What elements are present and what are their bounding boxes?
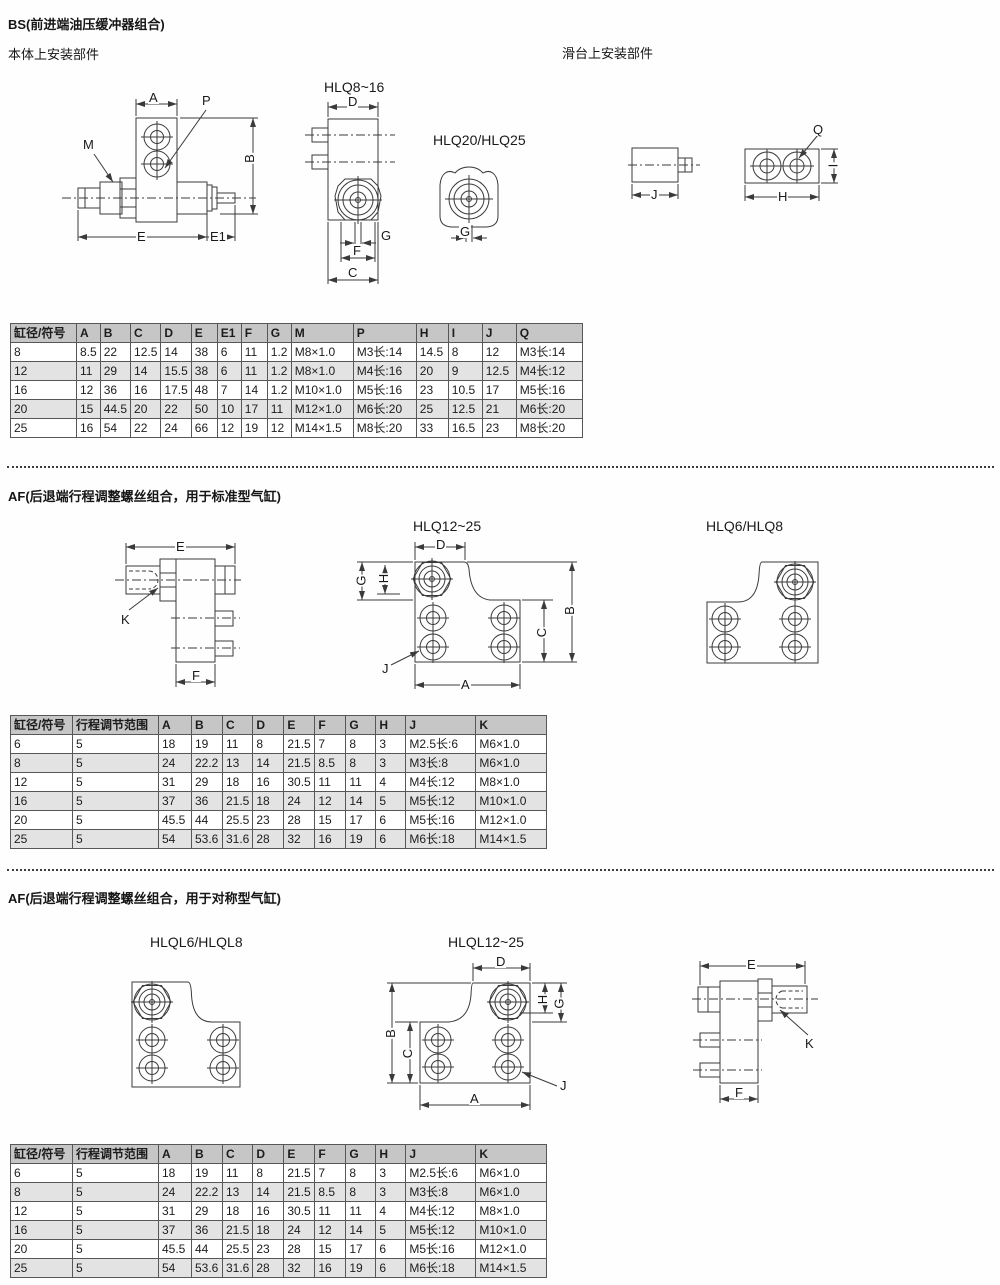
dim-label-d: D xyxy=(435,538,446,551)
figure-hlq12-25: D G H B C A J xyxy=(355,538,585,693)
table-cell: 21.5 xyxy=(223,792,253,811)
table-cell: 14 xyxy=(253,1183,284,1202)
dim-label-b: B xyxy=(563,605,576,616)
table-cell: 22 xyxy=(131,419,161,438)
table-cell: 37 xyxy=(159,1221,192,1240)
table-cell: 23 xyxy=(416,381,448,400)
screw-icon xyxy=(422,1051,454,1083)
table-cell: 12.5 xyxy=(482,362,516,381)
dim-label-c: C xyxy=(535,627,548,638)
table-cell: M14×1.5 xyxy=(476,830,547,849)
table-cell: M14×1.5 xyxy=(476,1259,547,1278)
table-cell: 18 xyxy=(253,1221,284,1240)
table-cell: 18 xyxy=(159,735,192,754)
table-cell: 12 xyxy=(11,362,77,381)
table-cell: 16 xyxy=(77,419,101,438)
dim-label-b: B xyxy=(384,1028,397,1039)
figure-title-hlql12-25: HLQL12~25 xyxy=(448,934,524,950)
table-cell: 12 xyxy=(315,1221,346,1240)
table-row: 65181911821.5783M2.5长:6M6×1.0 xyxy=(11,1164,547,1183)
screw-icon xyxy=(417,602,449,634)
table-cell: 6 xyxy=(11,1164,73,1183)
table-cell: M8长:20 xyxy=(353,419,416,438)
caption-body-mount: 本体上安装部件 xyxy=(8,44,99,63)
screw-icon xyxy=(207,1052,239,1084)
table-cell: 11 xyxy=(77,362,101,381)
figure-hlql6-hlql8 xyxy=(125,975,250,1090)
table-cell: 15.5 xyxy=(161,362,191,381)
dim-label-g: G xyxy=(355,574,368,586)
table-cell: 1.2 xyxy=(267,362,291,381)
column-header: 缸径/符号 xyxy=(11,1145,73,1164)
table-cell: M10×1.0 xyxy=(291,381,353,400)
table-cell: 54 xyxy=(159,1259,192,1278)
table-cell: 22.2 xyxy=(192,754,223,773)
table-cell: 15 xyxy=(77,400,101,419)
table-cell: 25 xyxy=(11,830,73,849)
table-cell: 24 xyxy=(284,792,315,811)
column-header: C xyxy=(131,324,161,343)
table-cell: 38 xyxy=(191,362,217,381)
table-cell: 19 xyxy=(241,419,267,438)
dim-label-g: G xyxy=(380,229,392,242)
table-cell: 8.5 xyxy=(315,754,346,773)
table-cell: 17 xyxy=(346,1240,376,1259)
screw-icon xyxy=(709,603,741,635)
dim-label-h: H xyxy=(536,994,549,1005)
column-header: E xyxy=(284,716,315,735)
table-cell: 15 xyxy=(315,1240,346,1259)
figure-hlq8-16: D G F C xyxy=(305,95,417,290)
column-header: P xyxy=(353,324,416,343)
dim-label-e: E xyxy=(746,958,757,971)
table-cell: 17 xyxy=(241,400,267,419)
table-cell: 16 xyxy=(253,773,284,792)
catalog-page: BS(前进端油压缓冲器组合) 本体上安装部件 滑台上安装部件 xyxy=(0,0,1000,1285)
table-cell: 8 xyxy=(346,1183,376,1202)
table-cell: 5 xyxy=(73,1221,159,1240)
table-cell: 20 xyxy=(11,811,73,830)
table-cell: 18 xyxy=(253,792,284,811)
table-cell: 7 xyxy=(315,1164,346,1183)
figure-title-hlq20-25: HLQ20/HLQ25 xyxy=(433,132,526,148)
figure-hlq20-25: G xyxy=(435,163,505,248)
table-cell: 28 xyxy=(253,1259,284,1278)
column-header: F xyxy=(315,1145,346,1164)
table-cell: 5 xyxy=(376,1221,406,1240)
table-cell: 10 xyxy=(217,400,241,419)
dim-label-a: A xyxy=(469,1092,480,1105)
table-cell: 12.5 xyxy=(448,400,482,419)
figure-af-std-side-view: E K F xyxy=(113,537,243,689)
table-cell: M3长:14 xyxy=(353,343,416,362)
table-cell: 4 xyxy=(376,1202,406,1221)
column-header: A xyxy=(77,324,101,343)
column-header: F xyxy=(241,324,267,343)
table-cell: 12 xyxy=(482,343,516,362)
table-cell: 24 xyxy=(159,754,192,773)
table-cell: 21.5 xyxy=(284,735,315,754)
table-af-symmetric: 缸径/符号行程调节范围ABCDEFGHJK65181911821.5783M2.… xyxy=(10,1144,547,1278)
table-cell: 18 xyxy=(159,1164,192,1183)
dotted-separator xyxy=(7,869,994,871)
column-header: A xyxy=(159,1145,192,1164)
table-cell: 54 xyxy=(159,830,192,849)
table-cell: 22.2 xyxy=(192,1183,223,1202)
table-cell: 66 xyxy=(191,419,217,438)
column-header: B xyxy=(100,324,130,343)
dim-label-f: F xyxy=(734,1086,744,1099)
column-header: Q xyxy=(516,324,582,343)
table-cell: 6 xyxy=(217,343,241,362)
dim-label-c: C xyxy=(401,1048,414,1059)
column-header: M xyxy=(291,324,353,343)
table-cell: M6×1.0 xyxy=(476,754,547,773)
table-cell: M8×1.0 xyxy=(476,773,547,792)
table-cell: M6×1.0 xyxy=(476,735,547,754)
figure-title-hlq6-hlq8: HLQ6/HLQ8 xyxy=(706,518,783,534)
table-cell: 29 xyxy=(192,773,223,792)
column-header: H xyxy=(376,1145,406,1164)
table-cell: 22 xyxy=(161,400,191,419)
table-cell: M5长:16 xyxy=(353,381,416,400)
table-cell: 23 xyxy=(482,419,516,438)
column-header: H xyxy=(416,324,448,343)
dim-label-e1: E1 xyxy=(209,230,227,243)
column-header: E xyxy=(284,1145,315,1164)
table-cell: 28 xyxy=(284,811,315,830)
table-cell: M14×1.5 xyxy=(291,419,353,438)
figure-title-hlql6-hlql8: HLQL6/HLQL8 xyxy=(150,934,243,950)
table-cell: M4长:12 xyxy=(406,1202,476,1221)
table-cell: 30.5 xyxy=(284,1202,315,1221)
column-header: C xyxy=(223,716,253,735)
table-cell: M4长:12 xyxy=(516,362,582,381)
screw-icon xyxy=(488,631,520,663)
column-header: 行程调节范围 xyxy=(73,1145,159,1164)
table-cell: 20 xyxy=(131,400,161,419)
figure-slider-block: J xyxy=(628,143,703,205)
table-cell: M2.5长:6 xyxy=(406,1164,476,1183)
figure-title-hlq12-25: HLQ12~25 xyxy=(413,518,481,534)
table-cell: 11 xyxy=(241,362,267,381)
screw-icon xyxy=(136,1052,168,1084)
screw-icon xyxy=(779,603,811,635)
table-row: 201544.5202250101711M12×1.0M6长:202512.52… xyxy=(11,400,583,419)
table-cell: 8 xyxy=(346,754,376,773)
table-cell: 12 xyxy=(11,1202,73,1221)
column-header: J xyxy=(482,324,516,343)
screw-icon xyxy=(709,631,741,663)
figure-title-hlq8-16: HLQ8~16 xyxy=(324,79,384,95)
table-cell: M4长:12 xyxy=(406,773,476,792)
table-cell: 3 xyxy=(376,735,406,754)
table-cell: 15 xyxy=(315,811,346,830)
hlq8-16-drawing xyxy=(305,95,417,290)
table-cell: 23 xyxy=(253,811,284,830)
table-cell: 5 xyxy=(73,754,159,773)
table-cell: 50 xyxy=(191,400,217,419)
table-cell: M5长:16 xyxy=(406,1240,476,1259)
column-header: E xyxy=(191,324,217,343)
screw-icon xyxy=(207,1024,239,1056)
table-cell: M6×1.0 xyxy=(476,1164,547,1183)
table-cell: 4 xyxy=(376,773,406,792)
table-cell: 21 xyxy=(482,400,516,419)
table-cell: 8 xyxy=(346,735,376,754)
column-header: E1 xyxy=(217,324,241,343)
table-cell: M6长:20 xyxy=(516,400,582,419)
table-cell: 19 xyxy=(192,1164,223,1183)
table-cell: M8×1.0 xyxy=(291,343,353,362)
table-cell: 25 xyxy=(11,419,77,438)
table-cell: M10×1.0 xyxy=(476,1221,547,1240)
table-cell: 12 xyxy=(315,792,346,811)
column-header: B xyxy=(192,1145,223,1164)
dim-label-k: K xyxy=(120,613,131,626)
screw-icon xyxy=(488,602,520,634)
table-cell: 19 xyxy=(346,1259,376,1278)
table-cell: M6×1.0 xyxy=(476,1183,547,1202)
table-cell: M5长:16 xyxy=(406,811,476,830)
table-cell: 53.6 xyxy=(192,1259,223,1278)
table-cell: M6长:20 xyxy=(353,400,416,419)
column-header: K xyxy=(476,1145,547,1164)
table-cell: 8 xyxy=(11,343,77,362)
dim-label-p: P xyxy=(201,94,212,107)
table-cell: M3长:8 xyxy=(406,754,476,773)
table-cell: 20 xyxy=(11,1240,73,1259)
dim-label-j: J xyxy=(559,1079,568,1092)
table-cell: 45.5 xyxy=(159,1240,192,1259)
table-row: 2555453.631.6283216196M6长:18M14×1.5 xyxy=(11,1259,547,1278)
table-cell: 1.2 xyxy=(267,343,291,362)
dim-label-m: M xyxy=(82,138,95,151)
table-cell: 23 xyxy=(253,1240,284,1259)
section-title-bs: BS(前进端油压缓冲器组合) xyxy=(8,14,165,33)
table-cell: 12 xyxy=(77,381,101,400)
adjuster-screw-icon xyxy=(487,981,529,1023)
table-row: 852422.2131421.58.583M3长:8M6×1.0 xyxy=(11,754,547,773)
table-cell: 36 xyxy=(192,1221,223,1240)
dim-label-h: H xyxy=(377,573,390,584)
table-cell: 17 xyxy=(482,381,516,400)
table-cell: 11 xyxy=(315,773,346,792)
table-cell: 5 xyxy=(376,792,406,811)
dim-label-d: D xyxy=(495,955,506,968)
table-cell: 16 xyxy=(11,381,77,400)
table-cell: 11 xyxy=(223,735,253,754)
table-cell: 8 xyxy=(11,754,73,773)
table-cell: 10.5 xyxy=(448,381,482,400)
table-cell: 16 xyxy=(11,1221,73,1240)
table-cell: 21.5 xyxy=(223,1221,253,1240)
table-row: 165373621.5182412145M5长:12M10×1.0 xyxy=(11,792,547,811)
table-bs: 缸径/符号ABCDEE1FGMPHIJQ88.52212.514386111.2… xyxy=(10,323,583,438)
column-header: F xyxy=(315,716,346,735)
table-cell: 38 xyxy=(191,343,217,362)
dim-label-j: J xyxy=(381,662,390,675)
table-cell: 5 xyxy=(73,735,159,754)
column-header: D xyxy=(253,716,284,735)
hlql12-25-drawing xyxy=(385,955,600,1115)
table-cell: 29 xyxy=(100,362,130,381)
table-row: 2555453.631.6283216196M6长:18M14×1.5 xyxy=(11,830,547,849)
buffer-side-drawing xyxy=(60,90,270,255)
dim-label-a: A xyxy=(148,91,159,104)
column-header: B xyxy=(192,716,223,735)
table-cell: 16 xyxy=(131,381,161,400)
table-cell: 6 xyxy=(376,1259,406,1278)
table-cell: 14.5 xyxy=(416,343,448,362)
screw-icon xyxy=(492,1051,524,1083)
column-header: 缸径/符号 xyxy=(11,716,73,735)
column-header: D xyxy=(253,1145,284,1164)
dim-label-d: D xyxy=(347,95,358,108)
table-cell: M6长:18 xyxy=(406,830,476,849)
table-cell: 54 xyxy=(100,419,130,438)
table-cell: 14 xyxy=(253,754,284,773)
table-cell: 5 xyxy=(73,1240,159,1259)
dim-label-f: F xyxy=(352,244,362,257)
table-cell: 14 xyxy=(346,792,376,811)
dim-label-g: G xyxy=(553,997,566,1009)
screw-icon xyxy=(779,631,811,663)
table-cell: 3 xyxy=(376,1164,406,1183)
table-cell: 28 xyxy=(284,1240,315,1259)
column-header: K xyxy=(476,716,547,735)
column-header: I xyxy=(448,324,482,343)
table-cell: 17 xyxy=(346,811,376,830)
screw-icon xyxy=(136,1024,168,1056)
column-header: A xyxy=(159,716,192,735)
hlql6-hlql8-drawing xyxy=(125,975,250,1090)
table-cell: 17.5 xyxy=(161,381,191,400)
adjuster-screw-icon xyxy=(774,561,816,603)
figure-hlq6-hlq8 xyxy=(700,555,825,670)
table-cell: M3长:8 xyxy=(406,1183,476,1202)
table-cell: 5 xyxy=(73,1202,159,1221)
slider-block-drawing xyxy=(628,143,703,205)
column-header: J xyxy=(406,716,476,735)
table-cell: 11 xyxy=(346,773,376,792)
table-row: 165373621.5182412145M5长:12M10×1.0 xyxy=(11,1221,547,1240)
table-cell: 44 xyxy=(192,1240,223,1259)
table-cell: 31 xyxy=(159,773,192,792)
table-cell: 8.5 xyxy=(77,343,101,362)
table-cell: 3 xyxy=(376,1183,406,1202)
table-row: 1612361617.5487141.2M10×1.0M5长:162310.51… xyxy=(11,381,583,400)
table-cell: 13 xyxy=(223,1183,253,1202)
dim-label-f: F xyxy=(191,669,201,682)
column-header: G xyxy=(346,1145,376,1164)
table-cell: 5 xyxy=(73,1259,159,1278)
table-cell: 6 xyxy=(217,362,241,381)
table-cell: 44 xyxy=(192,811,223,830)
dim-label-g: G xyxy=(459,225,471,238)
table-cell: 28 xyxy=(253,830,284,849)
column-header: 行程调节范围 xyxy=(73,716,159,735)
table-cell: 16.5 xyxy=(448,419,482,438)
table-cell: M6长:18 xyxy=(406,1259,476,1278)
column-header: C xyxy=(223,1145,253,1164)
table-cell: 16 xyxy=(315,1259,346,1278)
table-cell: M12×1.0 xyxy=(291,400,353,419)
table-cell: 7 xyxy=(315,735,346,754)
table-cell: 53.6 xyxy=(192,830,223,849)
table-cell: 19 xyxy=(346,830,376,849)
column-header: H xyxy=(376,716,406,735)
figure-hlql12-25: D H G B C A J xyxy=(385,955,600,1115)
table-cell: 37 xyxy=(159,792,192,811)
table-row: 852422.2131421.58.583M3长:8M6×1.0 xyxy=(11,1183,547,1202)
table-cell: 36 xyxy=(100,381,130,400)
dim-label-h: H xyxy=(777,190,788,203)
table-cell: 11 xyxy=(241,343,267,362)
table-cell: 8 xyxy=(11,1183,73,1202)
table-cell: 18 xyxy=(223,773,253,792)
table-cell: 5 xyxy=(73,830,159,849)
dim-label-j: J xyxy=(650,188,659,201)
table-cell: 32 xyxy=(284,1259,315,1278)
table-cell: 25 xyxy=(416,400,448,419)
table-cell: 14 xyxy=(241,381,267,400)
table-cell: 24 xyxy=(159,1183,192,1202)
dim-label-i: I xyxy=(826,163,839,169)
dotted-separator xyxy=(7,466,994,468)
table-cell: 8 xyxy=(253,1164,284,1183)
dim-label-c: C xyxy=(347,266,358,279)
hlq12-25-drawing xyxy=(355,538,585,693)
table-cell: 32 xyxy=(284,830,315,849)
table-cell: 25.5 xyxy=(223,811,253,830)
table-cell: 48 xyxy=(191,381,217,400)
table-header-row: 缸径/符号行程调节范围ABCDEFGHJK xyxy=(11,1145,547,1164)
table-cell: 6 xyxy=(376,830,406,849)
column-header: D xyxy=(161,324,191,343)
table-cell: 6 xyxy=(376,1240,406,1259)
dim-label-q: Q xyxy=(812,123,824,136)
table-cell: 16 xyxy=(315,830,346,849)
dim-label-b: B xyxy=(243,153,256,164)
table-cell: 24 xyxy=(161,419,191,438)
table-cell: M8长:20 xyxy=(516,419,582,438)
table-header-row: 缸径/符号ABCDEE1FGMPHIJQ xyxy=(11,324,583,343)
caption-slider-mount: 滑台上安装部件 xyxy=(562,43,653,62)
table-row: 1211291415.5386111.2M8×1.0M4长:1620912.5M… xyxy=(11,362,583,381)
table-cell: 11 xyxy=(315,1202,346,1221)
table-cell: 5 xyxy=(73,773,159,792)
table-cell: M5长:12 xyxy=(406,792,476,811)
table-cell: M5长:16 xyxy=(516,381,582,400)
figure-af-sym-side-view: E K F xyxy=(690,953,820,1105)
dim-label-k: K xyxy=(804,1037,815,1050)
table-cell: 6 xyxy=(11,735,73,754)
table-cell: 25.5 xyxy=(223,1240,253,1259)
dim-label-e: E xyxy=(175,540,186,553)
table-cell: 8.5 xyxy=(315,1183,346,1202)
table-cell: 11 xyxy=(223,1164,253,1183)
table-cell: 20 xyxy=(11,400,77,419)
table-cell: 14 xyxy=(161,343,191,362)
table-cell: 8 xyxy=(253,735,284,754)
screw-icon xyxy=(417,631,449,663)
table-cell: 45.5 xyxy=(159,811,192,830)
screw-icon xyxy=(780,149,814,183)
table-cell: M10×1.0 xyxy=(476,792,547,811)
dim-label-e: E xyxy=(136,230,147,243)
table-cell: 21.5 xyxy=(284,1183,315,1202)
